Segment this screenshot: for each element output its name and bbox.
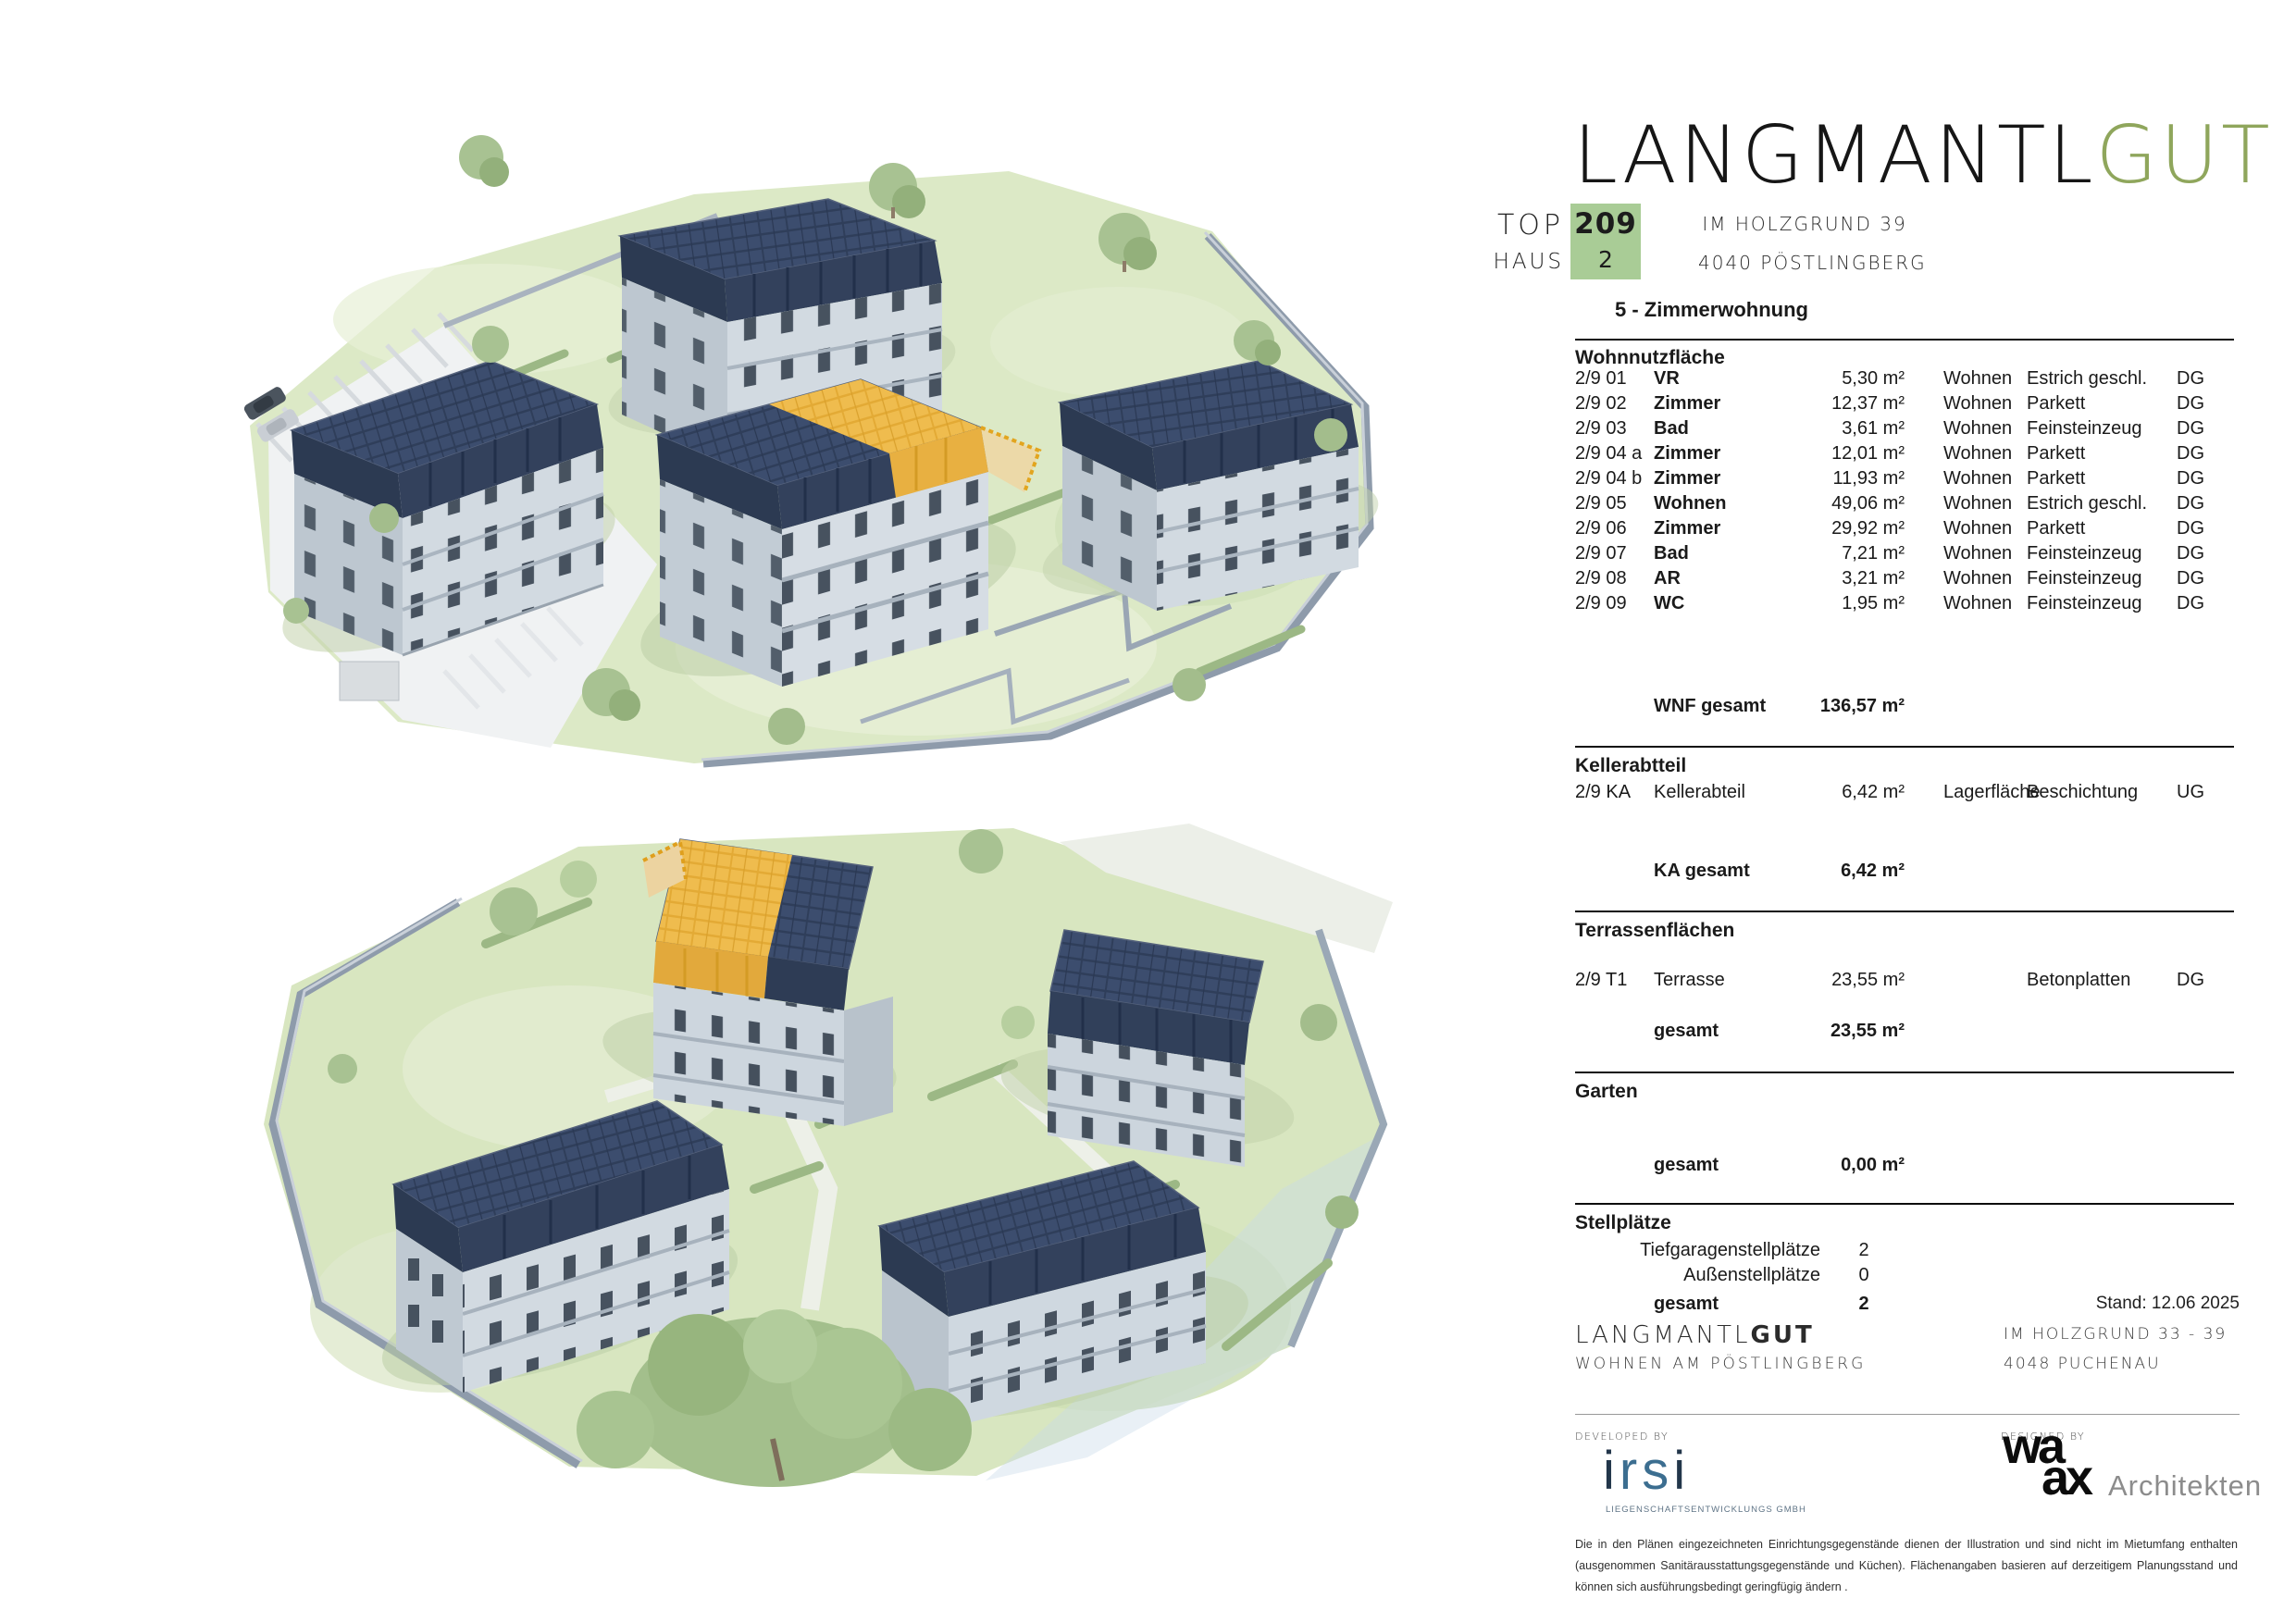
- table-row: 2/9 03Bad3,61 m²WohnenFeinsteinzeugDG: [1575, 418, 2241, 443]
- brand-logo: LANGMANTLGUT: [1573, 109, 2243, 202]
- table-row: 2/9 06Zimmer29,92 m²WohnenParkettDG: [1575, 518, 2241, 543]
- footer-address-line2: 4048 PUCHENAU: [2004, 1355, 2161, 1373]
- stellplatz-row: Tiefgaragenstellplätze2: [1575, 1240, 2241, 1265]
- terrassen-total-row: gesamt23,55 m²: [1575, 1021, 2241, 1046]
- unit-datasheet-page: LANGMANTLGUT TOP 209 HAUS 2 IM HOLZGRUND…: [0, 0, 2296, 1623]
- haus-value: 2: [1570, 246, 1641, 273]
- section-rule: [1575, 1072, 2234, 1073]
- garten-total-row: gesamt0,00 m²: [1575, 1155, 2241, 1180]
- table-row: 2/9 08AR3,21 m²WohnenFeinsteinzeugDG: [1575, 568, 2241, 593]
- garden-shed: [340, 662, 399, 700]
- footer-brand: LANGMANTLGUT: [1575, 1321, 1815, 1349]
- table-row: 2/9 07Bad7,21 m²WohnenFeinsteinzeugDG: [1575, 543, 2241, 568]
- brand-logo-black: LANGMANTL: [1573, 109, 2096, 202]
- site-rendering-aerial-top: [213, 130, 1409, 768]
- section-rule: [1575, 911, 2234, 912]
- table-row: 2/9 01VR5,30 m²WohnenEstrich geschl.DG: [1575, 368, 2241, 393]
- section-title-garten: Garten: [1575, 1081, 1638, 1103]
- footer-divider: [1575, 1414, 2240, 1415]
- irsi-logo-subtitle: LIEGENSCHAFTSENTWICKLUNGS GMBH: [1606, 1505, 1806, 1515]
- section-rule: [1575, 1203, 2234, 1205]
- table-row: 2/9 09WC1,95 m²WohnenFeinsteinzeugDG: [1575, 593, 2241, 618]
- footer-address-line1: IM HOLZGRUND 33 - 39: [2004, 1325, 2227, 1344]
- section-title-keller: Kellerabtteil: [1575, 755, 1686, 777]
- top-label: TOP: [1444, 209, 1564, 242]
- table-row: 2/9 KAKellerabteil6,42 m²LagerflächeBesc…: [1575, 782, 2241, 807]
- section-title-wohnnutzflaeche: Wohnnutzfläche: [1575, 347, 1725, 369]
- wnf-total-row: WNF gesamt136,57 m²: [1575, 696, 2241, 721]
- stellplatz-row: Außenstellplätze0: [1575, 1265, 2241, 1290]
- section-title-terrassen: Terrassenflächen: [1575, 920, 1734, 942]
- brand-logo-green: GUT: [2096, 109, 2273, 202]
- waax-logo: wa ax Architekten: [1999, 1421, 2296, 1523]
- section-rule: [1575, 746, 2234, 748]
- waax-architekten-label: Architekten: [2108, 1469, 2262, 1503]
- table-row: 2/9 02Zimmer12,37 m²WohnenParkettDG: [1575, 393, 2241, 418]
- building-right: [1060, 361, 1359, 611]
- table-row: 2/9 04 aZimmer12,01 m²WohnenParkettDG: [1575, 443, 2241, 468]
- top-value: 209: [1570, 207, 1641, 241]
- table-row: 2/9 05Wohnen49,06 m²WohnenEstrich geschl…: [1575, 493, 2241, 518]
- footer-tagline: WOHNEN AM PÖSTLINGBERG: [1575, 1355, 1866, 1373]
- section-rule: [1575, 339, 2234, 341]
- haus-label: HAUS: [1444, 250, 1564, 274]
- project-address-line1: IM HOLZGRUND 39: [1698, 213, 1911, 235]
- site-rendering-aerial-bottom: [180, 791, 1421, 1494]
- unit-type-title: 5 - Zimmerwohnung: [1615, 298, 1808, 322]
- irsi-logo: irsi: [1603, 1440, 1690, 1502]
- table-row: 2/9 04 bZimmer11,93 m²WohnenParkettDG: [1575, 468, 2241, 493]
- building-right: [1048, 930, 1263, 1167]
- project-address-line2: 4040 PÖSTLINGBERG: [1698, 252, 1911, 274]
- table-row: 2/9 T1Terrasse23,55 m²BetonplattenDG: [1575, 970, 2241, 995]
- ka-total-row: KA gesamt6,42 m²: [1575, 861, 2241, 886]
- stand-date: Stand: 12.06 2025: [1990, 1294, 2240, 1314]
- section-title-stellplaetze: Stellplätze: [1575, 1212, 1671, 1234]
- disclaimer-text: Die in den Plänen eingezeichneten Einric…: [1575, 1534, 2238, 1598]
